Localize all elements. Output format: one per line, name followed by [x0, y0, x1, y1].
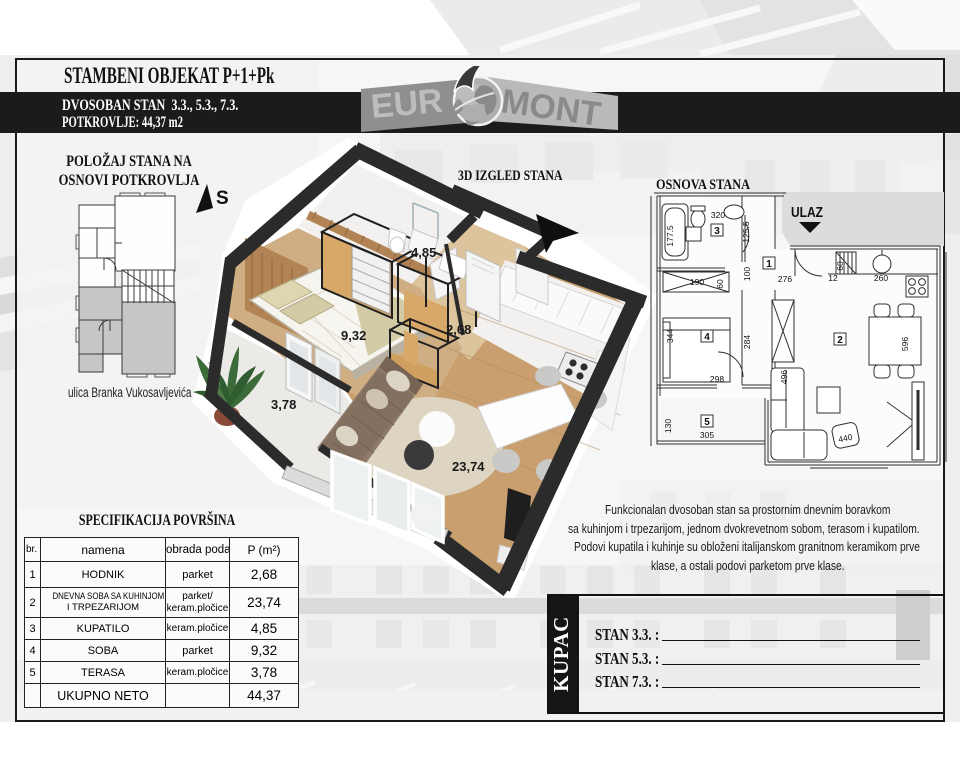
svg-text:3: 3 — [714, 226, 720, 237]
svg-text:60: 60 — [715, 279, 725, 289]
svg-text:100: 100 — [742, 267, 752, 281]
svg-text:305: 305 — [700, 430, 714, 440]
svg-text:177.5: 177.5 — [665, 225, 675, 247]
svg-text:596: 596 — [900, 337, 910, 351]
svg-text:284: 284 — [742, 335, 752, 349]
svg-text:4: 4 — [704, 332, 710, 343]
svg-text:276: 276 — [778, 274, 792, 284]
svg-text:60: 60 — [835, 261, 845, 271]
svg-text:12: 12 — [828, 273, 838, 283]
svg-text:320: 320 — [711, 210, 725, 220]
svg-text:2,68: 2,68 — [446, 322, 471, 337]
svg-text:9,32: 9,32 — [341, 328, 366, 343]
svg-text:23,74: 23,74 — [452, 459, 485, 474]
svg-text:EUR: EUR — [369, 82, 444, 126]
svg-text:2: 2 — [837, 335, 843, 346]
svg-text:3,78: 3,78 — [271, 397, 296, 412]
svg-text:190: 190 — [690, 277, 704, 287]
svg-text:ULAZ: ULAZ — [791, 204, 823, 221]
svg-text:1: 1 — [766, 259, 772, 270]
svg-text:260: 260 — [874, 273, 888, 283]
svg-text:MONT: MONT — [499, 82, 604, 134]
svg-text:4,85: 4,85 — [411, 245, 436, 260]
svg-text:OSNOVA STANA: OSNOVA STANA — [656, 177, 750, 193]
svg-text:496: 496 — [779, 370, 789, 384]
svg-text:344: 344 — [665, 329, 675, 343]
svg-text:5: 5 — [704, 417, 710, 428]
svg-text:298: 298 — [710, 374, 724, 384]
svg-text:125.5: 125.5 — [741, 221, 751, 243]
svg-text:130: 130 — [663, 419, 673, 433]
